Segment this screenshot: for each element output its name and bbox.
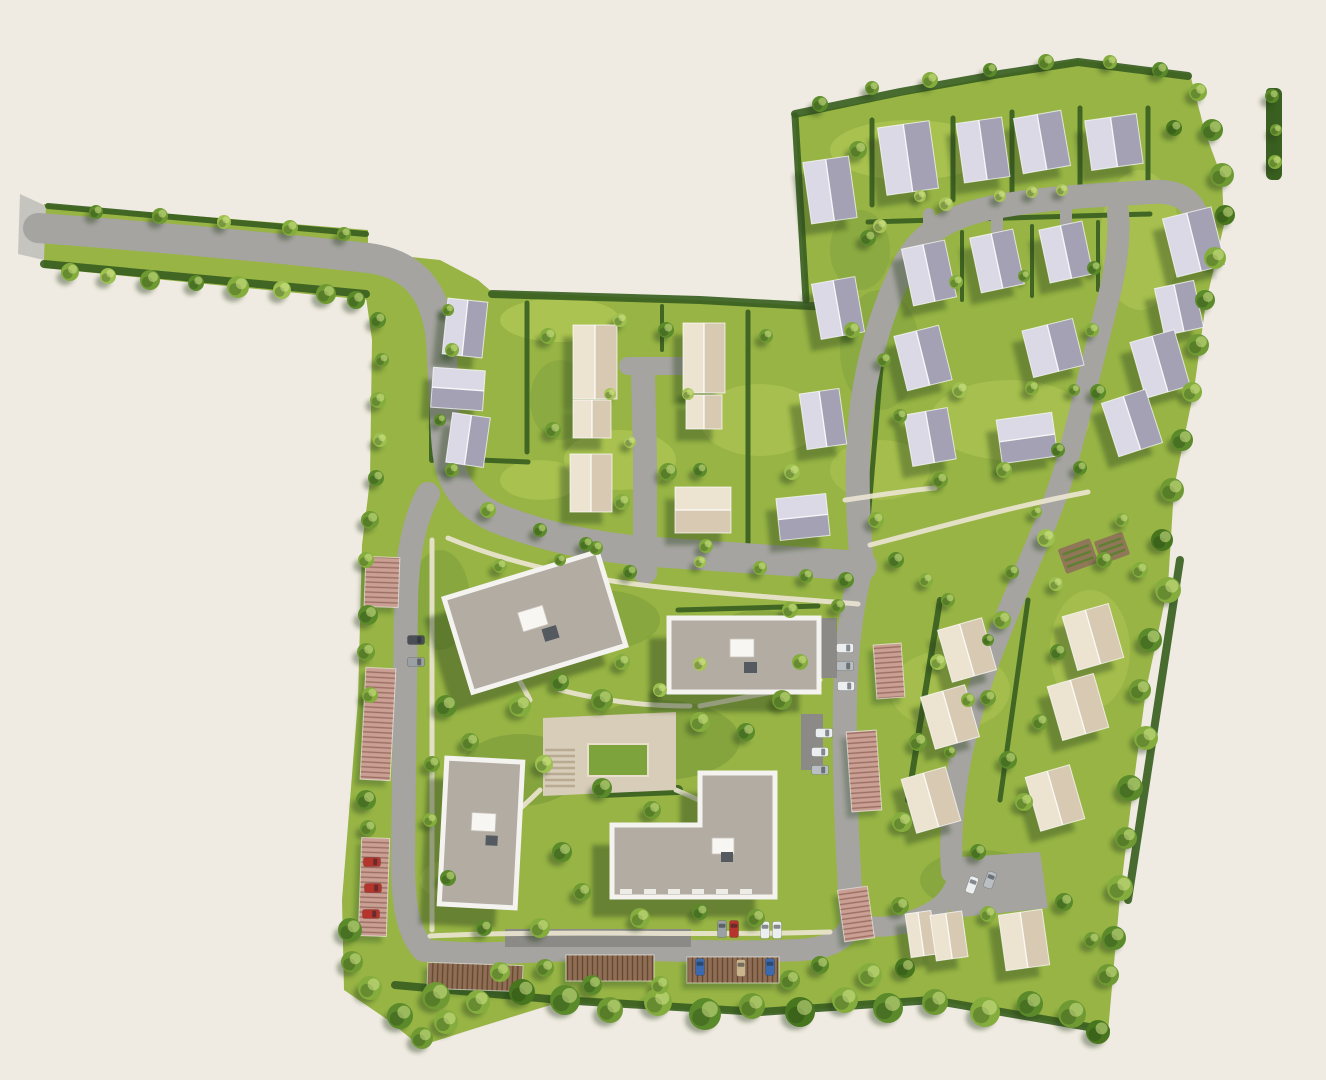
tree	[849, 141, 867, 159]
roof-access-box	[712, 838, 734, 854]
tree	[387, 1003, 413, 1029]
tree-crown-highlight	[976, 846, 984, 854]
tree-crown-highlight	[1000, 613, 1009, 622]
tree-crown-highlight	[1210, 121, 1221, 132]
tree	[624, 436, 636, 448]
tree-crown-highlight	[666, 465, 675, 474]
tree	[535, 755, 553, 773]
tree-crown-highlight	[698, 714, 708, 724]
tree-crown-highlight	[894, 554, 902, 562]
tree	[573, 883, 591, 901]
car-windshield	[767, 962, 774, 966]
tree	[888, 552, 904, 568]
car-body	[363, 910, 380, 919]
tree-crown-highlight	[444, 697, 455, 708]
tree	[1025, 381, 1039, 395]
car-body	[730, 921, 739, 938]
tree	[1097, 964, 1119, 986]
tree-crown-highlight	[945, 198, 952, 205]
tree	[1086, 1020, 1110, 1044]
tree	[970, 844, 986, 860]
tree	[922, 989, 948, 1015]
tree	[411, 1027, 433, 1049]
tree	[217, 215, 231, 229]
tree	[423, 813, 437, 827]
tree-crown-highlight	[366, 822, 374, 830]
tree-crown-highlight	[364, 792, 374, 802]
tree-crown-highlight	[451, 464, 458, 471]
tree	[273, 281, 291, 299]
tree	[780, 970, 800, 990]
tree	[591, 689, 613, 711]
car-windshield	[373, 859, 377, 866]
tree-crown-highlight	[518, 697, 529, 708]
tree-crown-highlight	[702, 1001, 718, 1017]
tree-crown-highlight	[1055, 578, 1062, 585]
car-windshield	[762, 925, 769, 929]
tree	[362, 687, 378, 703]
tree-crown-highlight	[444, 1012, 456, 1024]
tree	[689, 998, 721, 1030]
tree-crown-highlight	[986, 908, 994, 916]
tree	[480, 502, 496, 518]
tree-crown-highlight	[1006, 753, 1015, 762]
tree-crown-highlight	[759, 562, 766, 569]
tree-crown-highlight	[1170, 480, 1182, 492]
tree-crown-highlight	[620, 656, 628, 664]
tree	[994, 190, 1006, 202]
tree	[1090, 384, 1106, 400]
tree-crown-highlight	[343, 228, 350, 235]
tree	[440, 870, 456, 886]
house	[996, 412, 1058, 463]
tree-crown-highlight	[1274, 156, 1281, 163]
tree	[690, 712, 710, 732]
tree-crown-highlight	[106, 270, 114, 278]
tree	[747, 909, 765, 927]
tree	[370, 392, 386, 408]
tree	[533, 523, 547, 537]
tree-crown-highlight	[446, 872, 454, 880]
car	[364, 858, 381, 867]
roof-face-dark	[592, 400, 611, 438]
tree	[811, 956, 829, 974]
tree	[784, 464, 800, 480]
tree	[693, 657, 707, 671]
tree-crown-highlight	[223, 216, 230, 223]
car	[737, 960, 746, 977]
tree-crown-highlight	[866, 232, 874, 240]
tree-crown-highlight	[1106, 966, 1117, 977]
tree	[993, 611, 1011, 629]
tree-crown-highlight	[429, 814, 436, 821]
tree-crown-highlight	[1148, 630, 1160, 642]
courtyard-garden-bed	[588, 744, 648, 776]
car-body	[837, 662, 854, 671]
car-body	[812, 766, 829, 775]
tree-crown-highlight	[749, 996, 762, 1009]
tree-crown-highlight	[194, 277, 202, 285]
tree	[1085, 323, 1099, 337]
road	[643, 372, 645, 572]
balcony	[620, 889, 632, 894]
car-body	[718, 921, 727, 938]
tree	[597, 997, 623, 1023]
tree-crown-highlight	[916, 735, 925, 744]
car-windshield	[774, 925, 781, 929]
tree-crown-highlight	[1073, 385, 1079, 391]
tree-crown-highlight	[68, 265, 77, 274]
roof-face-dark	[675, 510, 731, 533]
tree-crown-highlight	[1096, 1022, 1108, 1034]
tree	[613, 313, 627, 327]
tree	[360, 820, 376, 836]
tree-crown-highlight	[558, 675, 567, 684]
tree-crown-highlight	[765, 330, 772, 337]
tree	[844, 322, 860, 338]
tree	[461, 733, 479, 751]
roof-face-dark	[595, 325, 617, 399]
tree-crown-highlight	[580, 885, 589, 894]
tree	[582, 975, 602, 995]
tree-crown-highlight	[1223, 207, 1233, 217]
balcony	[692, 889, 704, 894]
tree-crown-highlight	[629, 566, 636, 573]
tree	[653, 683, 667, 697]
tree	[895, 958, 915, 978]
tree-crown-highlight	[350, 953, 361, 964]
tree-crown-highlight	[658, 978, 667, 987]
tree-crown-highlight	[364, 554, 372, 562]
house	[956, 117, 1010, 183]
balcony	[740, 889, 752, 894]
car-body	[816, 729, 833, 738]
tree-crown-highlight	[348, 920, 360, 932]
tree	[1051, 443, 1065, 457]
tree-crown-highlight	[1056, 646, 1064, 654]
tree-crown-highlight	[629, 437, 635, 443]
tree	[919, 573, 933, 587]
house	[1014, 110, 1071, 173]
tree-crown-highlight	[874, 514, 882, 522]
tree-crown-highlight	[366, 607, 376, 617]
tree	[932, 472, 948, 488]
tree	[892, 812, 912, 832]
tree	[1102, 926, 1126, 950]
tree-crown-highlight	[280, 283, 289, 292]
roof-face-light	[675, 487, 731, 510]
tree-crown-highlight	[1091, 324, 1098, 331]
tree-crown-highlight	[1002, 464, 1010, 472]
tree-crown-highlight	[928, 74, 936, 82]
tree	[540, 328, 556, 344]
tree-crown-highlight	[379, 434, 386, 441]
tree-crown-highlight	[374, 472, 382, 480]
tree	[368, 470, 384, 486]
tree-crown-highlight	[986, 692, 994, 700]
tree	[614, 494, 630, 510]
tree	[792, 654, 808, 670]
roof-face-dark	[591, 454, 612, 512]
tree	[1204, 247, 1226, 269]
car	[363, 910, 380, 919]
roof-face-dark	[704, 395, 722, 429]
tree	[1038, 54, 1054, 70]
tree-crown-highlight	[1079, 462, 1086, 469]
car-body	[812, 748, 829, 757]
carport-pergola	[873, 643, 905, 699]
tree	[831, 599, 845, 613]
tree	[782, 602, 798, 618]
tree-crown-highlight	[999, 191, 1005, 197]
car-windshield	[846, 663, 850, 670]
car	[718, 921, 727, 938]
tree	[1096, 552, 1112, 568]
car-windshield	[825, 730, 829, 737]
tree	[188, 275, 204, 291]
car	[812, 748, 829, 757]
car-windshield	[374, 885, 378, 892]
tree	[356, 790, 376, 810]
tree-crown-highlight	[638, 910, 648, 920]
house	[570, 454, 612, 512]
tree-crown-highlight	[1203, 292, 1213, 302]
tree-crown-highlight	[1035, 507, 1041, 513]
tree-crown-highlight	[397, 1006, 410, 1019]
tree-crown-highlight	[1117, 878, 1130, 891]
tree	[551, 673, 569, 691]
tree	[1049, 577, 1063, 591]
tree-crown-highlight	[1027, 994, 1040, 1007]
car-body	[364, 858, 381, 867]
house	[776, 494, 830, 541]
tree	[422, 982, 450, 1010]
tree	[868, 512, 884, 528]
tree-crown-highlight	[790, 466, 798, 474]
tree	[1268, 155, 1282, 169]
tree-crown-highlight	[158, 210, 166, 218]
tree	[980, 690, 996, 706]
house	[675, 487, 731, 533]
tree-crown-highlight	[543, 961, 552, 970]
tree-crown-highlight	[900, 814, 910, 824]
tree-crown-highlight	[842, 990, 855, 1003]
tree-crown-highlight	[538, 920, 548, 930]
tree	[877, 353, 891, 367]
tree-crown-highlight	[420, 1029, 431, 1040]
tree	[493, 559, 507, 573]
tree-crown-highlight	[1165, 580, 1178, 593]
car-windshield	[731, 924, 738, 928]
house	[686, 395, 722, 429]
tree-crown-highlight	[1213, 249, 1224, 260]
tree-crown-highlight	[476, 992, 488, 1004]
roof-face-light	[570, 454, 591, 512]
tree	[799, 569, 813, 583]
tree	[739, 993, 765, 1019]
tree-crown-highlight	[590, 977, 600, 987]
car	[837, 644, 854, 653]
tree	[643, 801, 661, 819]
car-body	[766, 959, 775, 976]
tree-crown-highlight	[659, 684, 666, 691]
tree	[579, 537, 593, 551]
tree	[341, 951, 363, 973]
tree-crown-highlight	[1062, 895, 1071, 904]
tree	[623, 565, 637, 579]
house	[799, 388, 846, 449]
tree-crown-highlight	[1044, 56, 1052, 64]
tree-crown-highlight	[885, 996, 900, 1011]
tree-crown-highlight	[1144, 728, 1156, 740]
car-windshield	[846, 645, 850, 652]
tree	[152, 208, 168, 224]
tree	[536, 959, 554, 977]
tree	[338, 918, 362, 942]
tree-crown-highlight	[607, 1000, 620, 1013]
tree	[373, 433, 387, 447]
roof-face-light	[683, 323, 704, 393]
tree	[509, 695, 531, 717]
tree-crown-highlight	[780, 692, 790, 702]
tree-crown-highlight	[1109, 56, 1116, 63]
tree	[961, 693, 975, 707]
carport-pergola	[846, 730, 882, 812]
tree-crown-highlight	[1031, 382, 1038, 389]
tree	[1182, 382, 1202, 402]
carport-pergola	[360, 667, 396, 780]
tree-crown-highlight	[871, 82, 878, 89]
tree-crown-highlight	[1271, 90, 1278, 97]
tree-crown-highlight	[650, 803, 659, 812]
house	[803, 156, 857, 224]
tree-crown-highlight	[903, 960, 913, 970]
car	[696, 959, 705, 976]
tree	[893, 409, 907, 423]
car	[812, 766, 829, 775]
site-plan-rendering	[0, 0, 1326, 1080]
tree	[1050, 644, 1066, 660]
tree-crown-highlight	[324, 286, 334, 296]
tree	[1155, 577, 1181, 603]
tree-crown-highlight	[844, 574, 852, 582]
tree-crown-highlight	[376, 394, 384, 402]
house	[683, 323, 725, 393]
tree	[952, 382, 968, 398]
tree-crown-highlight	[1102, 554, 1110, 562]
tree-crown-highlight	[381, 354, 388, 361]
car	[365, 884, 382, 893]
tree-crown-highlight	[936, 656, 944, 664]
tree-crown-highlight	[499, 560, 506, 567]
tree	[1026, 186, 1038, 198]
tree-crown-highlight	[699, 658, 706, 665]
tree-crown-highlight	[818, 958, 827, 967]
tree	[860, 230, 876, 246]
tree-crown-highlight	[1158, 64, 1166, 72]
house	[573, 325, 617, 399]
tree-crown-highlight	[898, 899, 907, 908]
tree	[445, 463, 459, 477]
house	[573, 400, 611, 438]
tree	[1201, 119, 1223, 141]
tree	[358, 976, 382, 1000]
tree-crown-highlight	[1172, 122, 1180, 130]
tree-crown-highlight	[1090, 934, 1098, 942]
tree	[1073, 461, 1087, 475]
tree	[476, 920, 492, 936]
tree	[980, 906, 996, 922]
tree-crown-highlight	[868, 965, 880, 977]
tree	[772, 690, 792, 710]
tree	[316, 284, 336, 304]
tree-crown-highlight	[560, 844, 570, 854]
tree-crown-highlight	[482, 922, 490, 930]
tree-crown-highlight	[938, 474, 946, 482]
tree-crown-highlight	[899, 410, 906, 417]
house	[998, 909, 1049, 971]
tree	[550, 985, 580, 1015]
car-windshield	[417, 659, 421, 666]
tree	[891, 897, 909, 915]
tree-crown-highlight	[1190, 384, 1200, 394]
tree-crown-highlight	[1093, 262, 1100, 269]
house	[1085, 114, 1143, 171]
car-body	[408, 658, 425, 667]
tree-crown-highlight	[498, 964, 508, 974]
tree	[1166, 120, 1182, 136]
roof-access-box	[730, 639, 754, 657]
tree	[1151, 529, 1173, 551]
tree	[358, 552, 374, 568]
tree	[1117, 775, 1143, 801]
tree	[1160, 478, 1184, 502]
tree-crown-highlight	[1160, 531, 1171, 542]
car-windshield	[697, 962, 704, 966]
tree-crown-highlight	[619, 314, 626, 321]
tree	[1195, 290, 1215, 310]
tree-crown-highlight	[1127, 778, 1140, 791]
tree-crown-highlight	[797, 1000, 812, 1015]
tree-crown-highlight	[1196, 85, 1205, 94]
tree	[1171, 429, 1193, 451]
tree	[140, 270, 160, 290]
tree-crown-highlight	[856, 143, 865, 152]
tree-crown-highlight	[1011, 566, 1018, 573]
tree-crown-highlight	[376, 314, 384, 322]
tree-crown-highlight	[955, 276, 962, 283]
tree-crown-highlight	[451, 344, 458, 351]
tree-crown-highlight	[600, 780, 610, 790]
tree-crown-highlight	[1031, 187, 1037, 193]
tree	[983, 63, 997, 77]
tree	[1005, 565, 1019, 579]
tree	[658, 322, 674, 338]
tree	[970, 997, 1000, 1027]
tree	[1134, 726, 1158, 750]
tree	[1129, 679, 1151, 701]
tree-crown-highlight	[818, 98, 826, 106]
tree-crown-highlight	[805, 570, 812, 577]
car-body	[365, 884, 382, 893]
tree-crown-highlight	[850, 324, 858, 332]
tree	[1215, 205, 1235, 225]
tree-crown-highlight	[1121, 514, 1128, 521]
house	[431, 367, 486, 411]
tree	[604, 388, 616, 400]
tree	[865, 81, 879, 95]
tree-crown-highlight	[798, 656, 806, 664]
